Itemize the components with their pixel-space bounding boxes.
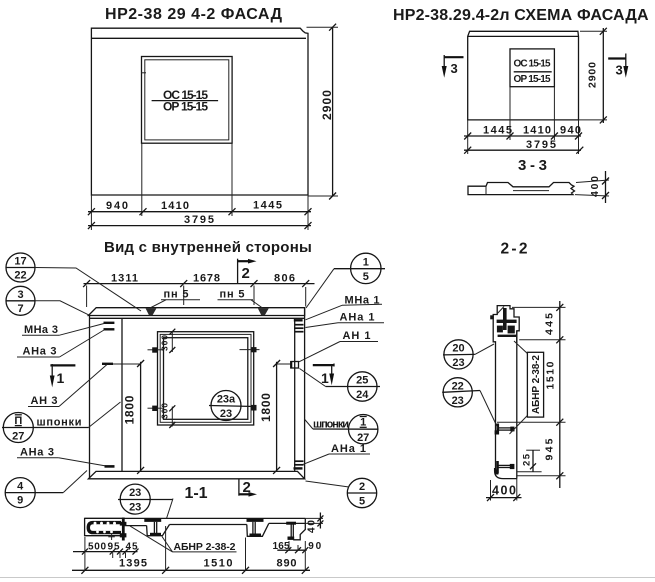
svg-text:3-3: 3-3 bbox=[518, 157, 547, 174]
svg-text:2900: 2900 bbox=[320, 90, 334, 120]
svg-text:3: 3 bbox=[17, 289, 23, 301]
svg-text:445: 445 bbox=[544, 313, 556, 335]
svg-text:АБНР 2-38-2: АБНР 2-38-2 bbox=[531, 355, 542, 414]
svg-text:АНа 1: АНа 1 bbox=[331, 443, 366, 455]
svg-text:7: 7 bbox=[17, 303, 23, 315]
svg-text:2: 2 bbox=[359, 481, 365, 493]
svg-text:1678: 1678 bbox=[193, 273, 220, 285]
svg-text:Вид с внутренней стороны: Вид с внутренней стороны bbox=[104, 239, 313, 256]
svg-text:22: 22 bbox=[452, 380, 464, 392]
svg-text:940: 940 bbox=[106, 200, 128, 212]
svg-text:5: 5 bbox=[363, 271, 369, 283]
svg-text:НР2-38.29.4-2л СХЕМА ФАСАДА: НР2-38.29.4-2л СХЕМА ФАСАДА bbox=[393, 7, 649, 24]
svg-text:2-2: 2-2 bbox=[501, 241, 528, 258]
svg-text:1510: 1510 bbox=[204, 558, 233, 570]
svg-text:25: 25 bbox=[522, 453, 533, 466]
svg-text:1445: 1445 bbox=[483, 125, 512, 137]
svg-text:АНа 1: АНа 1 bbox=[340, 312, 375, 324]
svg-text:300: 300 bbox=[160, 403, 170, 419]
svg-text:2: 2 bbox=[243, 479, 251, 496]
svg-text:400: 400 bbox=[492, 484, 516, 498]
svg-text:90: 90 bbox=[308, 541, 321, 552]
svg-text:27: 27 bbox=[12, 431, 24, 443]
svg-text:9: 9 bbox=[17, 495, 23, 507]
svg-text:1800: 1800 bbox=[259, 393, 273, 422]
svg-text:945: 945 bbox=[544, 438, 556, 460]
svg-text:1: 1 bbox=[363, 256, 369, 268]
svg-text:пн 5: пн 5 bbox=[220, 289, 245, 301]
svg-text:2900: 2900 bbox=[587, 62, 599, 88]
svg-text:1395: 1395 bbox=[119, 558, 147, 570]
svg-text:1: 1 bbox=[57, 370, 65, 386]
svg-text:1410: 1410 bbox=[523, 125, 551, 137]
svg-text:23: 23 bbox=[129, 487, 141, 499]
svg-text:940: 940 bbox=[560, 125, 581, 137]
svg-text:3: 3 bbox=[451, 61, 458, 76]
svg-text:1445: 1445 bbox=[253, 200, 282, 212]
svg-text:1-1: 1-1 bbox=[185, 485, 208, 502]
svg-text:24: 24 bbox=[356, 389, 369, 401]
svg-text:40: 40 bbox=[307, 520, 318, 533]
svg-text:1410: 1410 bbox=[161, 200, 189, 212]
svg-text:шпонки: шпонки bbox=[37, 417, 82, 429]
svg-text:500: 500 bbox=[88, 542, 106, 553]
svg-text:806: 806 bbox=[274, 273, 295, 285]
svg-text:23а: 23а bbox=[217, 394, 236, 406]
svg-text:1311: 1311 bbox=[111, 273, 138, 285]
svg-text:АН 3: АН 3 bbox=[31, 395, 58, 407]
svg-text:400: 400 bbox=[589, 176, 601, 197]
svg-text:ОР 15-15: ОР 15-15 bbox=[163, 100, 208, 114]
svg-text:ОС 15-15: ОС 15-15 bbox=[514, 59, 551, 70]
svg-text:23: 23 bbox=[452, 357, 464, 369]
svg-text:5: 5 bbox=[359, 496, 365, 508]
svg-text:3795: 3795 bbox=[184, 214, 214, 226]
svg-text:пн 5: пн 5 bbox=[164, 289, 189, 301]
svg-text:1800: 1800 bbox=[123, 395, 137, 424]
svg-text:20: 20 bbox=[452, 342, 464, 354]
svg-text:АНа 3: АНа 3 bbox=[23, 346, 57, 358]
svg-text:4: 4 bbox=[17, 481, 24, 493]
svg-text:АНа 3: АНа 3 bbox=[20, 447, 54, 459]
svg-text:23: 23 bbox=[129, 502, 141, 514]
svg-text:23: 23 bbox=[220, 408, 232, 420]
svg-text:НР2-38 29 4-2 ФАСАД: НР2-38 29 4-2 ФАСАД bbox=[105, 6, 283, 23]
svg-text:300: 300 bbox=[160, 335, 170, 351]
svg-text:АБНР 2-38-2: АБНР 2-38-2 bbox=[174, 541, 236, 553]
svg-text:23: 23 bbox=[452, 395, 464, 407]
svg-text:3: 3 bbox=[616, 63, 623, 78]
svg-text:2: 2 bbox=[242, 265, 250, 282]
svg-text:МНа 3: МНа 3 bbox=[24, 324, 58, 336]
svg-text:17: 17 bbox=[14, 256, 26, 268]
svg-text:22: 22 bbox=[14, 270, 26, 282]
svg-text:ОР 15-15: ОР 15-15 bbox=[514, 74, 551, 85]
svg-text:3795: 3795 bbox=[526, 139, 556, 151]
svg-text:1510: 1510 bbox=[545, 361, 557, 389]
svg-text:25: 25 bbox=[356, 375, 368, 387]
svg-text:890: 890 bbox=[277, 558, 297, 570]
svg-text:шпонки: шпонки bbox=[313, 419, 349, 431]
svg-text:АН 1: АН 1 bbox=[343, 330, 371, 342]
